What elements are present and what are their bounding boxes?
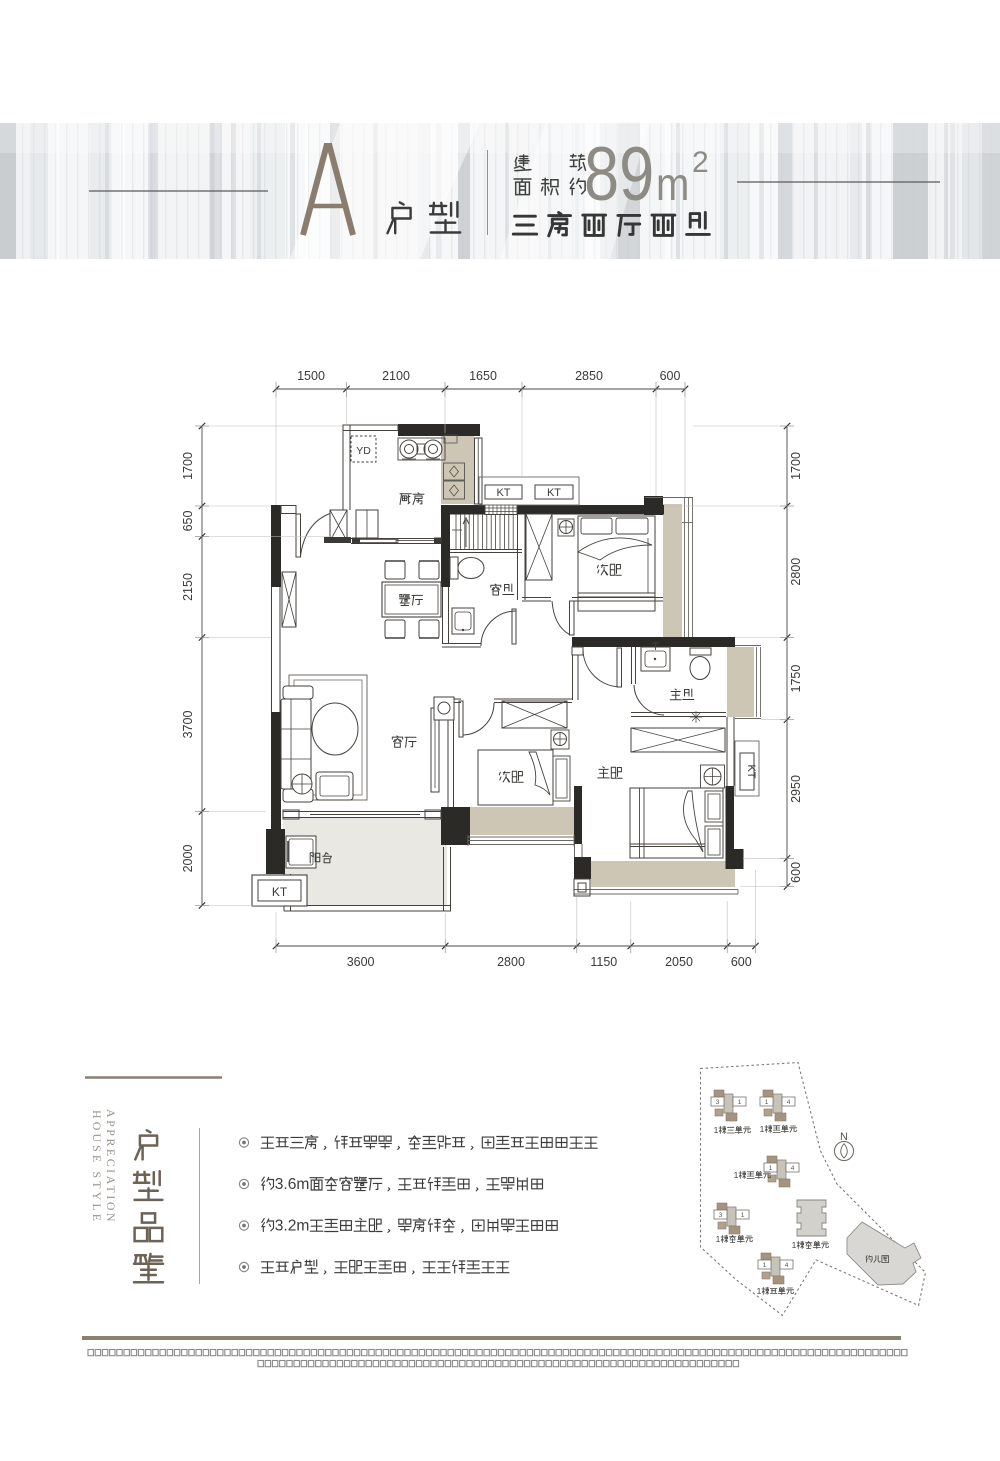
svg-text:89: 89 (584, 131, 654, 216)
svg-text:4: 4 (787, 1099, 791, 1106)
svg-text:KT: KT (272, 885, 288, 899)
svg-text:1: 1 (734, 1170, 739, 1180)
svg-text:3: 3 (719, 1212, 723, 1219)
svg-text:KT: KT (745, 764, 757, 778)
svg-text:2150: 2150 (181, 573, 195, 601)
svg-text:4: 4 (785, 1262, 789, 1269)
svg-text:KT: KT (547, 487, 561, 499)
svg-text:1700: 1700 (789, 452, 803, 480)
svg-text:1: 1 (765, 1099, 769, 1106)
svg-text:m: m (656, 159, 689, 210)
svg-text:650: 650 (181, 511, 195, 532)
svg-text:2800: 2800 (497, 955, 525, 969)
svg-text:3700: 3700 (181, 711, 195, 739)
svg-text:600: 600 (660, 369, 681, 383)
svg-text:1: 1 (738, 1099, 742, 1106)
svg-text:600: 600 (731, 955, 752, 969)
svg-text:2: 2 (692, 146, 709, 179)
svg-text:2050: 2050 (665, 955, 693, 969)
svg-text:1500: 1500 (297, 369, 325, 383)
svg-text:3600: 3600 (347, 955, 375, 969)
svg-text:2100: 2100 (382, 369, 410, 383)
svg-text:3: 3 (716, 1099, 720, 1106)
svg-text:1: 1 (792, 1240, 797, 1250)
svg-text:1: 1 (760, 1124, 765, 1134)
svg-text:YD: YD (356, 445, 371, 457)
svg-text:3.2m: 3.2m (275, 1218, 310, 1235)
svg-text:APPRECIATION: APPRECIATION (104, 1109, 118, 1224)
svg-text:2000: 2000 (181, 845, 195, 873)
svg-text:1150: 1150 (590, 955, 617, 969)
svg-text:2800: 2800 (789, 558, 803, 586)
svg-text:2950: 2950 (789, 775, 803, 803)
svg-text:1: 1 (716, 1234, 721, 1244)
svg-text:1700: 1700 (181, 452, 195, 480)
svg-text:1: 1 (763, 1262, 767, 1269)
svg-text:600: 600 (789, 862, 803, 883)
svg-text:1: 1 (714, 1125, 719, 1135)
svg-text:3.6m: 3.6m (275, 1176, 310, 1193)
svg-text:4: 4 (791, 1165, 795, 1172)
svg-text:1750: 1750 (789, 665, 803, 693)
svg-text:2850: 2850 (575, 369, 603, 383)
svg-text:HOUSE STYLE: HOUSE STYLE (90, 1110, 104, 1224)
svg-text:KT: KT (496, 487, 510, 499)
svg-text:1: 1 (741, 1212, 745, 1219)
svg-text:1: 1 (757, 1286, 762, 1296)
svg-text:1650: 1650 (469, 369, 497, 383)
svg-text:1: 1 (769, 1165, 773, 1172)
